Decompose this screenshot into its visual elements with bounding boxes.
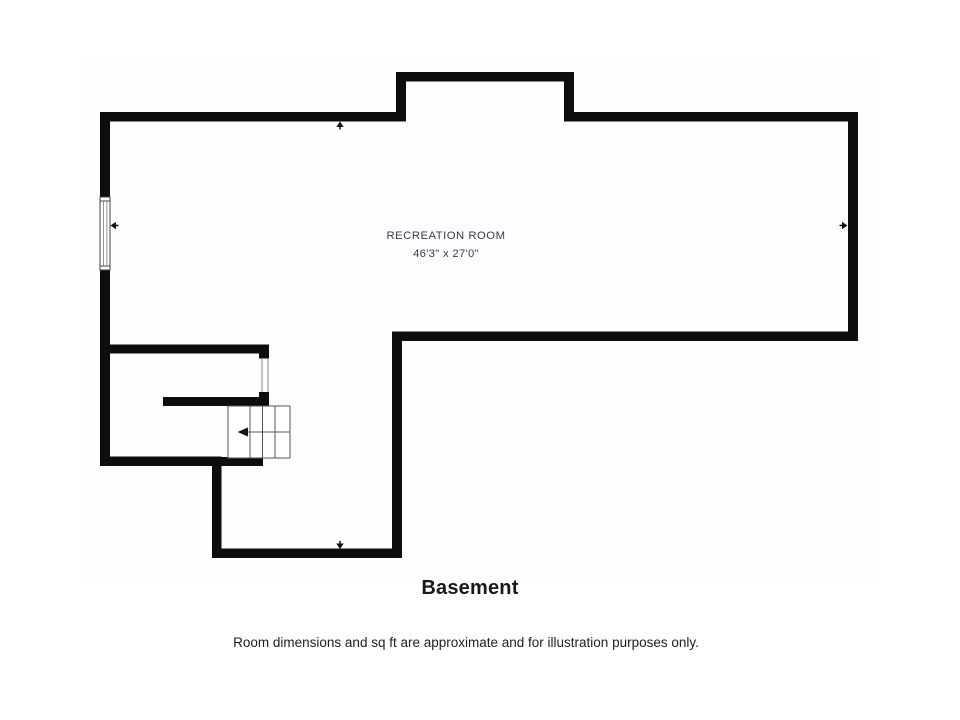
window (100, 197, 110, 270)
window-frame (100, 197, 110, 270)
floor-plan-page: RECREATION ROOM 46'3" x 27'0" Basement R… (0, 0, 960, 720)
basement-floor-plan: RECREATION ROOM 46'3" x 27'0" (0, 0, 960, 720)
interior-wall-upper (100, 345, 268, 354)
disclaimer-text: Room dimensions and sq ft are approximat… (0, 635, 932, 650)
door-jamb-stub-upper (259, 345, 269, 359)
stairs (228, 406, 290, 458)
plan-canvas (80, 62, 880, 577)
floor-title: Basement (0, 577, 940, 600)
door-jamb-stub-lower (259, 392, 269, 406)
interior-wall-lower (163, 397, 268, 406)
room-name-label: RECREATION ROOM (386, 230, 505, 242)
room-dimensions-label: 46'3" x 27'0" (413, 248, 479, 260)
